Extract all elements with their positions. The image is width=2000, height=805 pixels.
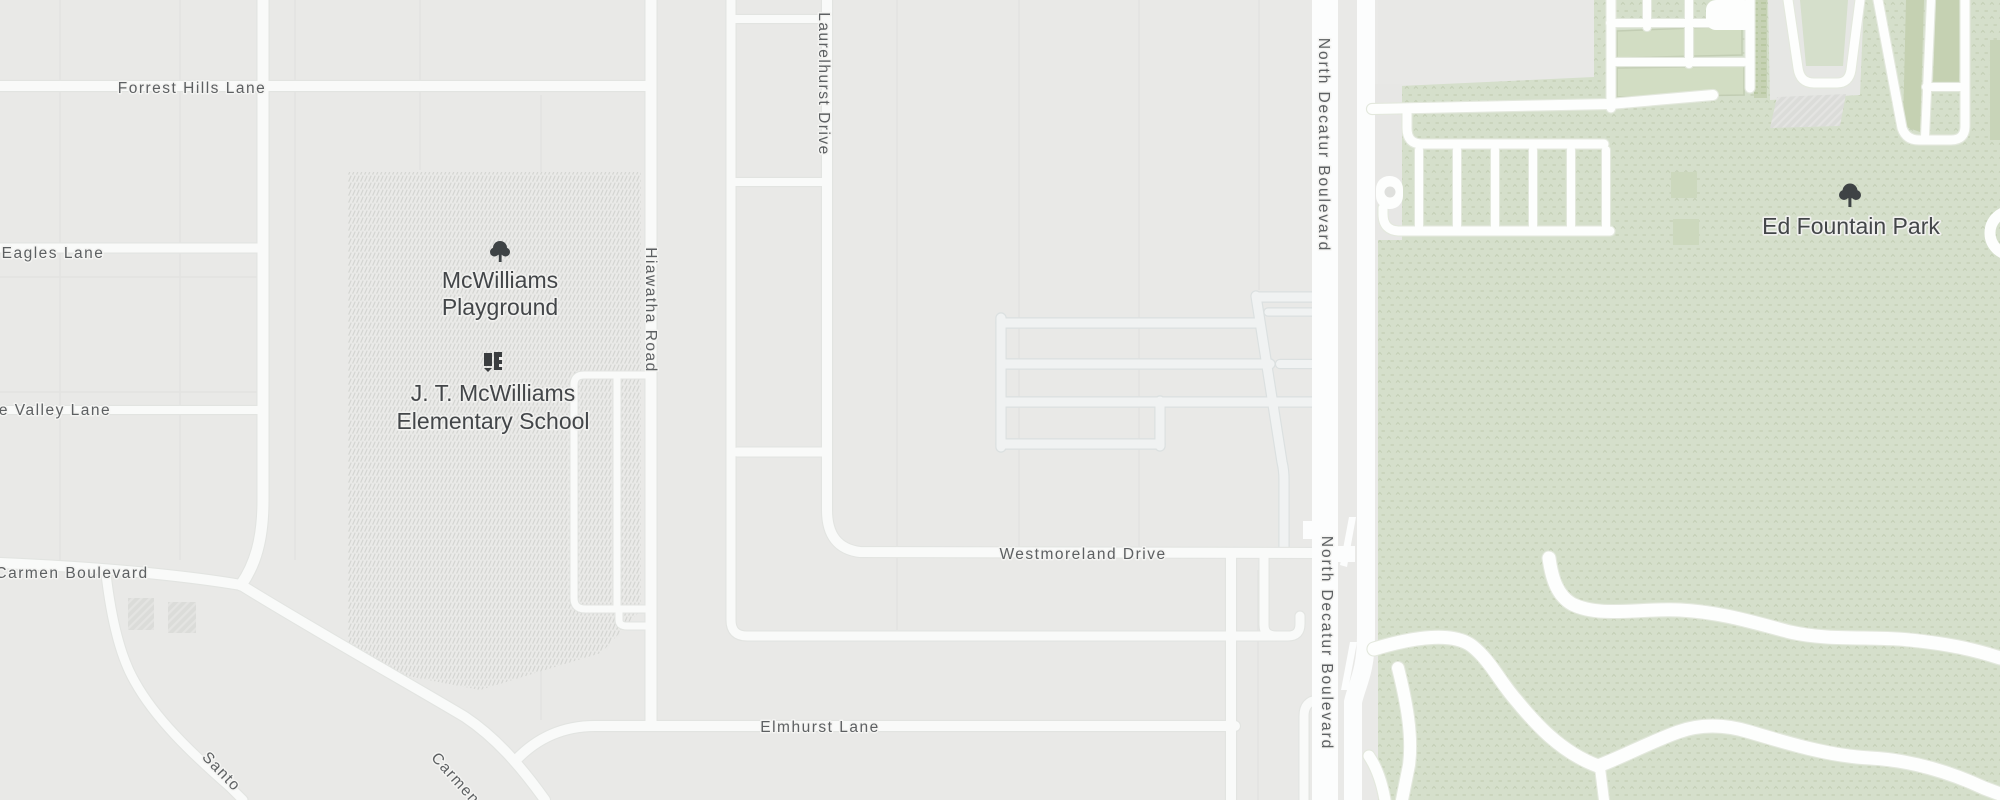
svg-text:Elementary School: Elementary School [396, 408, 589, 434]
svg-text:Westmoreland Drive: Westmoreland Drive [999, 546, 1166, 563]
svg-text:North Decatur Boulevard: North Decatur Boulevard [1315, 38, 1332, 252]
svg-text:Hiawatha Road: Hiawatha Road [642, 247, 659, 372]
svg-text:Eagles Lane: Eagles Lane [2, 245, 105, 262]
svg-text:e Valley Lane: e Valley Lane [0, 402, 111, 419]
svg-text:McWilliams: McWilliams [442, 267, 558, 293]
svg-text:North Decatur Boulevard: North Decatur Boulevard [1318, 536, 1335, 750]
svg-text:Laurelhurst Drive: Laurelhurst Drive [815, 12, 832, 156]
svg-text:J. T. McWilliams: J. T. McWilliams [411, 380, 575, 406]
svg-text:Playground: Playground [442, 294, 558, 320]
svg-text:Ed Fountain Park: Ed Fountain Park [1762, 213, 1940, 239]
svg-text:Forrest Hills Lane: Forrest Hills Lane [118, 80, 266, 97]
svg-text:Carmen Boulevard: Carmen Boulevard [0, 565, 149, 582]
svg-text:Elmhurst Lane: Elmhurst Lane [760, 719, 879, 736]
